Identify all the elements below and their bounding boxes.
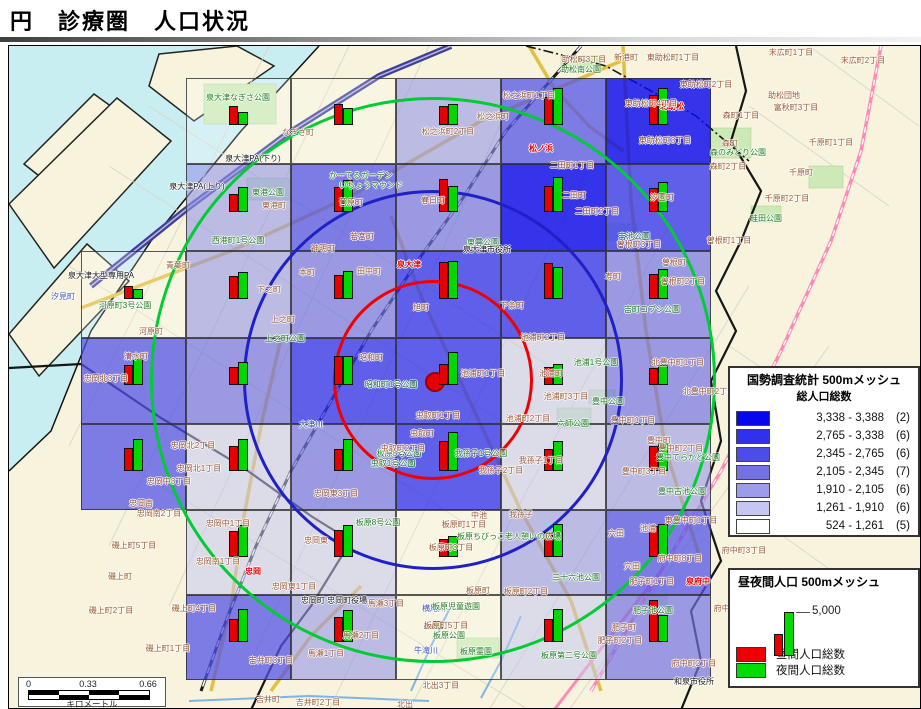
map-label: 吉町コブシ公園 (624, 306, 680, 314)
map-label: 虫取1号公園 (371, 460, 415, 468)
map-label: 馬瀬3丁目 (368, 600, 404, 608)
census-class-range: 1,261 - 1,910 (780, 502, 884, 514)
census-class-row: 2,105 - 2,345(7) (730, 463, 918, 481)
map-label: 肥子池公園 (633, 607, 673, 615)
map-label: 泉大津大型専用PA (68, 272, 134, 280)
map-label: 馬瀬1丁目 (308, 650, 344, 658)
map-label: 千原町1丁目 (809, 139, 853, 147)
map-label: 板原ちびっこ老人憩いの広場 (457, 533, 561, 541)
map-label: かーてるガーデン (329, 172, 393, 180)
map-label: 池浦1号公園 (574, 359, 618, 367)
census-class-row: 2,765 - 3,338(6) (730, 427, 918, 445)
census-class-swatch (736, 519, 770, 534)
map-label: 穴田 (624, 563, 640, 571)
map-label: 我孫子 (509, 511, 533, 519)
map-label: 府中町3丁目 (722, 547, 766, 555)
daynight-label: 夜間人口総数 (776, 662, 845, 678)
daynight-legend: 昼夜間人口 500mメッシュ 5,000 昼間人口総数夜間人口総数 (728, 568, 920, 688)
map-label: 虫取町 (410, 430, 434, 438)
map-label: 和泉市役所 (674, 678, 714, 686)
map-label: 磯上町1丁目 (146, 645, 190, 653)
title-rule (0, 37, 921, 42)
map-label: 西港町1号公園 (212, 237, 264, 245)
census-class-swatch (736, 411, 770, 426)
map-label: 末広町2丁目 (841, 57, 885, 65)
scalebar-unit: キロメートル (19, 698, 165, 709)
map-label: 東豊中町1丁目 (665, 517, 717, 525)
map-label: 森のみどり公園 (710, 149, 766, 157)
map-label: 助松南公園 (561, 66, 601, 74)
census-class-swatch (736, 483, 770, 498)
map-label: 東港公園 (252, 189, 284, 197)
map-label: 肥子町 (612, 624, 636, 632)
map-label: 忠岡南2丁目 (137, 510, 181, 518)
scalebar-tick-1: 0.33 (79, 679, 97, 689)
daynight-swatch (736, 647, 766, 662)
census-class-range: 2,345 - 2,765 (780, 448, 884, 460)
map-label: 吉井町 (256, 696, 280, 704)
map-label: 曽根町3丁目 (617, 241, 661, 249)
map-label: 大津川 (299, 421, 323, 429)
map-label: 池浦町1丁目 (461, 370, 505, 378)
daynight-legend-row: 夜間人口総数 (730, 662, 918, 678)
map-label: 板原霊園 (460, 648, 492, 656)
map-label: 磯上町5丁目 (112, 542, 156, 550)
map-label: 忠岡町 忠岡町役場 (301, 597, 367, 605)
map-label: 二田町2丁目 (575, 208, 619, 216)
daynight-sample: 5,000 (730, 590, 918, 646)
map-label: 曽根町 (662, 259, 686, 267)
page: 円 診療圏 人口状況 (0, 0, 921, 709)
map-label: 東助松町4丁目 (625, 100, 677, 108)
census-class-swatch (736, 465, 770, 480)
map-label: 板原町1丁目 (442, 521, 486, 529)
census-class-swatch (736, 429, 770, 444)
census-class-row: 3,338 - 3,388(2) (730, 409, 918, 427)
census-class-count: (6) (884, 430, 910, 442)
map-label: 中池 (471, 512, 487, 520)
map-label: 千原町 (789, 169, 813, 177)
map-label: 池浦町3丁目 (544, 393, 588, 401)
map-label: 上之町 (271, 316, 295, 324)
map-label: 忠岡東3丁目 (314, 490, 358, 498)
map-label: 松之浜町2丁目 (422, 128, 474, 136)
map-label: 寿町 (605, 273, 621, 281)
map-label: 河原町3号公園 (99, 302, 151, 310)
map-label: 青葉町 (166, 262, 190, 270)
map-label: 東助松町2丁目 (680, 81, 732, 89)
map-label: 二田町 (562, 192, 586, 200)
map-label: 松之浜町 (477, 113, 509, 121)
map-label: 牛滝川 (414, 647, 438, 655)
sample-daytime-bar (774, 634, 783, 656)
map-label: 忠岡 (245, 568, 261, 576)
map-label: 板原町5丁目 (424, 622, 468, 630)
census-legend-rows: 3,338 - 3,388(2)2,765 - 3,338(6)2,345 - … (730, 409, 918, 535)
map-label: 板原第二号公園 (541, 652, 597, 660)
scalebar: 0 0.33 0.66 キロメートル (18, 677, 166, 707)
map-label: 忠岡北3丁目 (84, 375, 128, 383)
map-label: 松之浜町1丁目 (503, 92, 555, 100)
sample-nighttime-bar (784, 612, 794, 656)
map-label: 板原8号公園 (356, 519, 400, 527)
map-label: 板原町2丁目 (504, 588, 548, 596)
map-label: 磯上町 (108, 573, 132, 581)
map-label: 池浦町2丁目 (506, 415, 550, 423)
census-class-range: 2,765 - 3,338 (780, 430, 884, 442)
map-label: 忠岡南 (129, 500, 153, 508)
census-class-count: (2) (884, 412, 910, 424)
scalebar-tick-2: 0.66 (139, 679, 157, 689)
map-label: 我孫子1号公園 (455, 450, 507, 458)
map-label: 忠岡東 (304, 537, 328, 545)
map-label: 忠岡東1丁目 (272, 583, 316, 591)
map-label: 忠岡北1丁目 (177, 465, 221, 473)
map-label: 池浦 (640, 525, 656, 533)
map-label: 忠岡中3丁目 (147, 478, 191, 486)
map-label: 泉大津PA(上り) (169, 183, 224, 191)
map-label: 富秋町3丁目 (774, 104, 818, 112)
census-legend-subtitle: 総人口総数 (730, 388, 918, 404)
census-class-swatch (736, 501, 770, 516)
map-label: 春日町 (421, 197, 445, 205)
map-label: 泉大津PA(下り) (225, 155, 280, 163)
map-label: 本町 (299, 269, 315, 277)
map-label: 豊中町3丁目 (622, 468, 666, 476)
census-class-range: 3,338 - 3,388 (780, 412, 884, 424)
map-label: 泉大津 (397, 261, 421, 269)
daynight-legend-rows: 昼間人口総数夜間人口総数 (730, 646, 918, 678)
map-label: 北出3丁目 (423, 682, 459, 690)
map-label: 曽根町1丁目 (707, 237, 751, 245)
map-label: 板原公園 (433, 632, 465, 640)
census-legend: 国勢調査統計 500mメッシュ 総人口総数 3,338 - 3,388(2)2,… (728, 366, 920, 537)
map-label: 若宮町 (350, 233, 374, 241)
map-label: 三十六池公園 (552, 574, 600, 582)
map-label: 板原児童遊園 (432, 603, 480, 611)
map-label: 我孫子1丁目 (519, 457, 563, 465)
map-label: 末広町1丁目 (769, 49, 813, 57)
map-label: 六田 (608, 530, 624, 538)
daynight-swatch (736, 663, 766, 678)
map-label: 肥子町2丁目 (598, 637, 642, 645)
map-label: 助松団地 (768, 92, 800, 100)
map-label: 泉府中 (686, 578, 710, 586)
map-label: 汐園町 (650, 194, 674, 202)
census-class-row: 2,345 - 2,765(6) (730, 445, 918, 463)
census-class-row: 524 - 1,261(5) (730, 517, 918, 535)
map-label: 河原町 (139, 328, 163, 336)
map-label: 板原町3丁目 (429, 544, 473, 552)
daynight-legend-title: 昼夜間人口 500mメッシュ (738, 573, 918, 590)
map-label: 池浦町2丁目 (521, 334, 565, 342)
map-label: 忠岡南1丁目 (196, 558, 240, 566)
map-label: 北出 (397, 701, 413, 709)
map-label: 菅原町 (339, 199, 363, 207)
map-label: 豊中公園 (592, 398, 624, 406)
census-legend-title: 国勢調査統計 500mメッシュ (730, 371, 918, 388)
map-label: 森町1丁目 (723, 112, 759, 120)
map-label: 馬瀬2丁目 (343, 632, 379, 640)
census-class-count: (6) (884, 502, 910, 514)
map-label: 忠岡北2丁目 (171, 442, 215, 450)
census-class-range: 2,105 - 2,345 (780, 466, 884, 478)
daynight-legend-row: 昼間人口総数 (730, 646, 918, 662)
scale-value: 5,000 (812, 605, 841, 617)
map-label: 昭和町1号公園 (365, 381, 417, 389)
census-class-count: (5) (884, 520, 910, 532)
map-label: 下之町 (257, 286, 281, 294)
census-class-range: 524 - 1,261 (780, 520, 884, 532)
census-class-row: 1,261 - 1,910(6) (730, 499, 918, 517)
map-label: 池浦町 (539, 370, 563, 378)
census-class-range: 1,910 - 2,105 (780, 484, 884, 496)
map-label: 虫取町2丁目 (381, 445, 425, 453)
map-label: いちょうマウンド (339, 182, 403, 190)
page-title: 円 診療圏 人口状況 (10, 4, 250, 36)
map-label: 府中町8丁目 (658, 555, 702, 563)
map-label: 新港町 (614, 54, 638, 62)
map-label: 旭町 (413, 304, 429, 312)
census-class-swatch (736, 447, 770, 462)
map-label: 忠岡中1丁目 (206, 520, 250, 528)
map-label: 泉大津市役所 (463, 246, 511, 254)
census-class-row: 1,910 - 2,105(6) (730, 481, 918, 499)
census-class-count: (6) (884, 448, 910, 460)
map-label: なぎさ町 (282, 129, 314, 137)
map-label: 清水町 (124, 353, 148, 361)
map-label: 豊中町1丁目 (611, 417, 655, 425)
map-label: 松ノ浜 (529, 145, 553, 153)
map-label: 北豊中町1丁目 (652, 359, 704, 367)
map-label: 昭和町 (359, 354, 383, 362)
map-label: 六師公園 (557, 420, 589, 428)
map-label: 汐見町 (51, 293, 75, 301)
map-label: 下条町 (500, 302, 524, 310)
map-label: 泉大津なぎさ公園 (206, 94, 270, 102)
map-label: 曽根町2丁目 (661, 278, 705, 286)
map-label: 畦田公園 (750, 215, 782, 223)
map-label: 二田町1丁目 (550, 162, 594, 170)
map-label: 肥子町1丁目 (630, 578, 674, 586)
scalebar-tick-0: 0 (26, 679, 31, 689)
map-label: 東助松町1丁目 (647, 54, 699, 62)
map-label: 神明町 (311, 245, 335, 253)
map-label: 田中町 (357, 268, 381, 276)
map-label: 森町2丁目 (710, 163, 746, 171)
scale-connector (796, 612, 810, 613)
map-label: 我孫子2丁目 (479, 467, 523, 475)
map-label: 豊中古池公園 (658, 488, 706, 496)
map-label: 豊中てらかど公園 (656, 454, 720, 462)
map-label: 上之町公園 (265, 335, 305, 343)
map-label: 東助松町3丁目 (639, 137, 691, 145)
map-label: 板原町 (466, 587, 490, 595)
map-label: 吉井町3丁目 (249, 657, 293, 665)
map-label: 磯上町2丁目 (89, 607, 133, 615)
map-label: 吉井町2丁目 (296, 699, 340, 707)
map-label: 虫取町1丁目 (416, 412, 460, 420)
census-class-count: (7) (884, 466, 910, 478)
map-label: 府中町2丁目 (672, 660, 716, 668)
map-label: 豊中町2丁目 (659, 445, 703, 453)
map-label: 磯上町4丁目 (172, 605, 216, 613)
census-class-count: (6) (884, 484, 910, 496)
map-label: 助松町3丁目 (562, 56, 606, 64)
map-label: 東港町 (262, 202, 286, 210)
map-label: 森町 (722, 140, 738, 148)
map-label: 千原町2丁目 (765, 195, 809, 203)
